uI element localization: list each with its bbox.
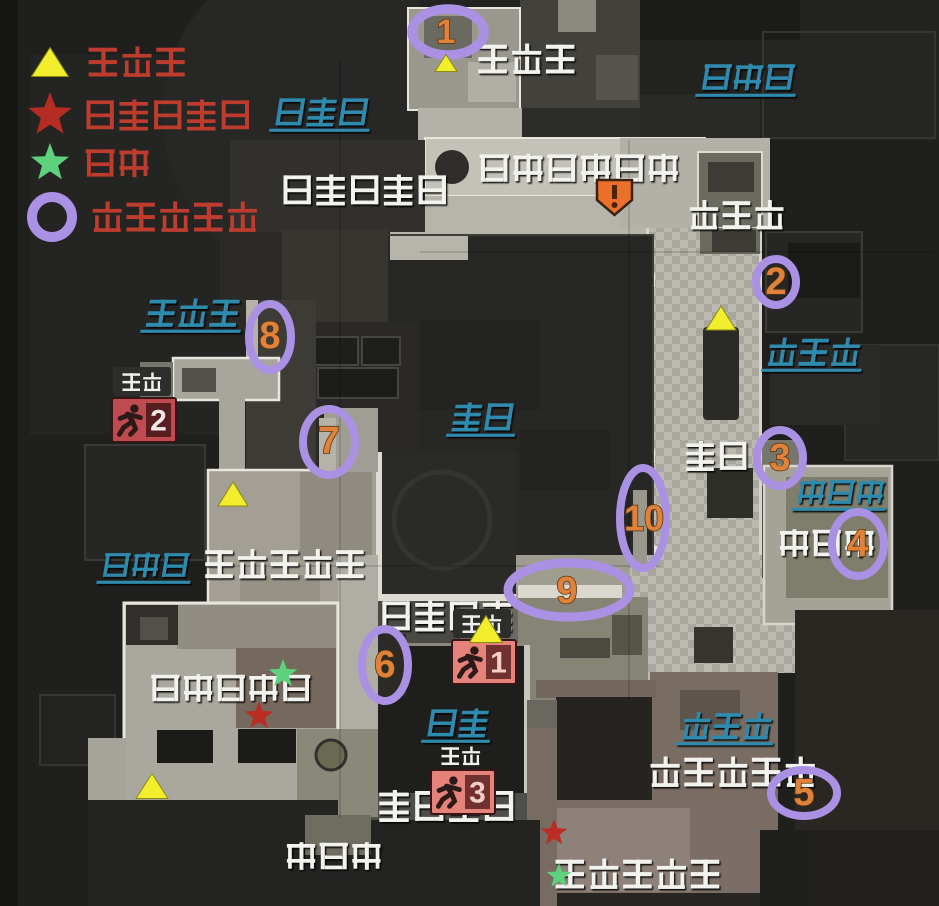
svg-text:9: 9 <box>556 570 577 612</box>
svg-text:1: 1 <box>490 647 507 680</box>
svg-text:7: 7 <box>318 420 339 462</box>
svg-text:1: 1 <box>437 13 456 51</box>
svg-text:3: 3 <box>769 437 790 479</box>
svg-text:5: 5 <box>793 772 814 814</box>
svg-text:3: 3 <box>469 777 486 810</box>
svg-text:4: 4 <box>847 523 868 565</box>
svg-text:6: 6 <box>374 644 395 686</box>
svg-text:2: 2 <box>150 405 167 438</box>
svg-text:2: 2 <box>765 261 786 303</box>
svg-text:8: 8 <box>259 315 280 357</box>
svg-text:10: 10 <box>624 498 664 539</box>
